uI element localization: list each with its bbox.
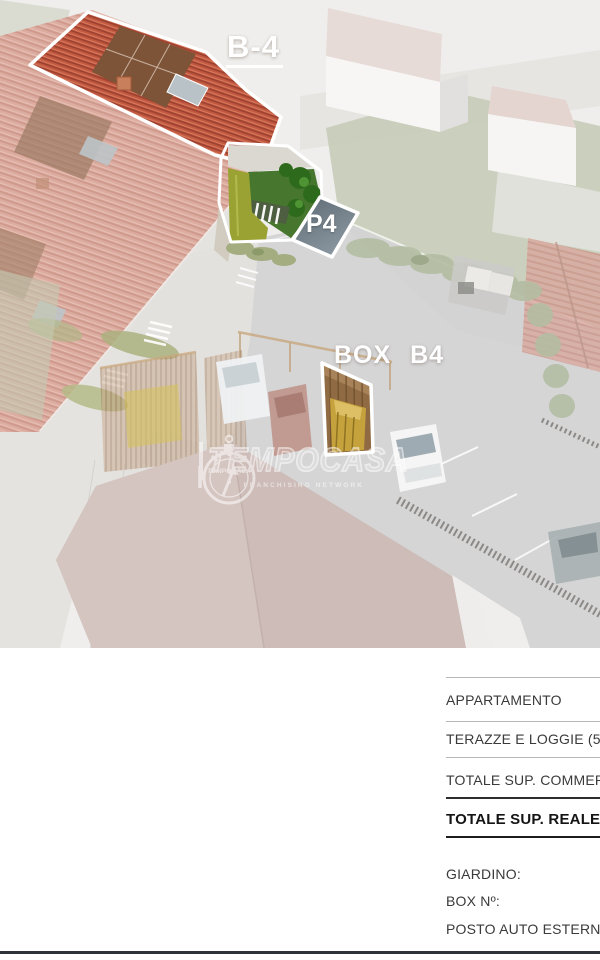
parking-label-p4: P4: [306, 212, 337, 237]
spec-row-total-commercial: TOTALE SUP. COMMERCIALE: [446, 772, 600, 799]
spec-row-garden: GIARDINO:: [446, 866, 600, 882]
car-yellow-faded: [124, 384, 182, 448]
tempocasa-watermark: TEMPOCASA TEMPOCASA FRANCHISING NETWORK: [196, 430, 406, 489]
spec-row-apartment: APPARTAMENTO: [446, 677, 600, 721]
spec-row-box-number: BOX Nº:: [446, 893, 600, 909]
unit-label-b4: B-4: [226, 31, 283, 68]
watermark-brand: TEMPOCASA: [199, 442, 409, 480]
garage-label-box-b4: BOX B4: [334, 343, 444, 368]
property-specs-table: APPARTAMENTO TERAZZE E LOGGIE (50% TOTAL…: [446, 677, 600, 937]
listing-page: B-4 P4 BOX B4 TEMPOCASA: [0, 0, 600, 960]
spec-row-terraces: TERAZZE E LOGGIE (50%: [446, 721, 600, 758]
neighbor-house-right: [488, 86, 576, 186]
spec-row-total-real: TOTALE SUP. REALE: [446, 812, 600, 838]
spec-row-outdoor-parking: POSTO AUTO ESTERNO: [446, 921, 600, 937]
bottom-divider: [0, 951, 600, 954]
site-plan-render: B-4 P4 BOX B4 TEMPOCASA: [0, 0, 600, 648]
render-art: [0, 0, 600, 648]
